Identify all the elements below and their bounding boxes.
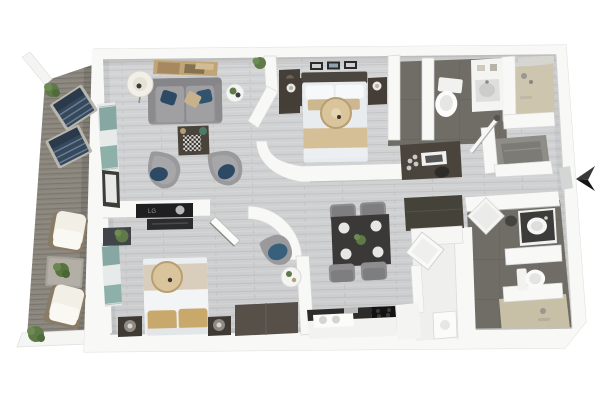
svg-text:LG: LG	[148, 209, 156, 215]
